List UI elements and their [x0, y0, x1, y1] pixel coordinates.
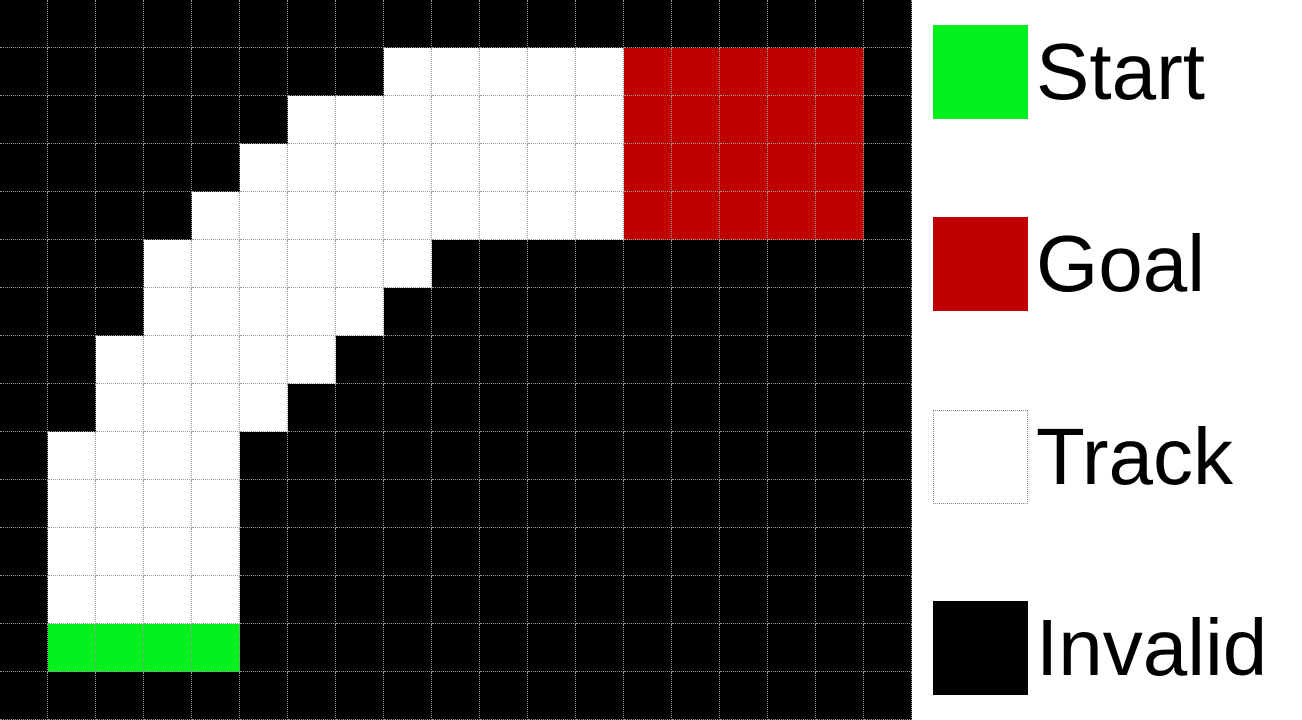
grid-cell: [336, 672, 384, 720]
legend-swatch-start: [933, 25, 1028, 119]
legend-item-invalid: Invalid: [933, 601, 1267, 695]
grid-cell: [864, 144, 912, 192]
grid-cell: [480, 0, 528, 48]
grid-cell: [624, 336, 672, 384]
grid-cell: [528, 384, 576, 432]
grid-cell: [432, 288, 480, 336]
grid-cell: [864, 336, 912, 384]
grid-cell: [816, 336, 864, 384]
grid-cell: [432, 240, 480, 288]
grid-cell: [624, 624, 672, 672]
grid-cell: [720, 192, 768, 240]
grid-cell: [192, 48, 240, 96]
grid-cell: [528, 576, 576, 624]
grid-cell: [864, 384, 912, 432]
grid-cell: [0, 528, 48, 576]
grid-cell: [816, 384, 864, 432]
grid-cell: [720, 576, 768, 624]
grid-cell: [432, 192, 480, 240]
grid-cell: [768, 480, 816, 528]
grid-cell: [432, 48, 480, 96]
grid-cell: [144, 672, 192, 720]
grid-cell: [336, 288, 384, 336]
legend-swatch-track: [933, 410, 1028, 504]
grid-cell: [288, 192, 336, 240]
grid-cell: [144, 48, 192, 96]
grid-cell: [720, 240, 768, 288]
grid-cell: [96, 384, 144, 432]
grid-cell: [0, 432, 48, 480]
grid-cell: [528, 288, 576, 336]
grid-cell: [816, 192, 864, 240]
grid-cell: [288, 48, 336, 96]
legend-label-track: Track: [1036, 410, 1233, 504]
grid-cell: [240, 480, 288, 528]
grid-cell: [240, 288, 288, 336]
grid-cell: [624, 432, 672, 480]
grid-cell: [624, 96, 672, 144]
grid-cell: [576, 624, 624, 672]
grid-cell: [768, 336, 816, 384]
grid-cell: [480, 528, 528, 576]
grid-cell: [0, 336, 48, 384]
grid-cell: [192, 384, 240, 432]
grid-cell: [672, 384, 720, 432]
grid-cell: [0, 624, 48, 672]
grid-cell: [864, 480, 912, 528]
grid-cell: [624, 144, 672, 192]
grid-cell: [432, 528, 480, 576]
grid-cell: [288, 480, 336, 528]
grid-cell: [192, 144, 240, 192]
grid-cell: [240, 48, 288, 96]
grid-cell: [720, 528, 768, 576]
legend-swatch-invalid: [933, 601, 1028, 695]
grid-cell: [672, 288, 720, 336]
grid-cell: [624, 480, 672, 528]
grid-cell: [816, 288, 864, 336]
grid-cell: [288, 288, 336, 336]
legend-label-invalid: Invalid: [1036, 601, 1267, 695]
grid-cell: [384, 144, 432, 192]
grid-cell: [48, 672, 96, 720]
grid-cell: [288, 336, 336, 384]
grid-cell: [576, 672, 624, 720]
grid-cell: [384, 624, 432, 672]
grid-cell: [192, 480, 240, 528]
grid-cell: [864, 192, 912, 240]
grid-cell: [720, 384, 768, 432]
grid-cell: [432, 96, 480, 144]
grid-cell: [480, 624, 528, 672]
grid-cell: [528, 480, 576, 528]
grid-cell: [48, 0, 96, 48]
grid-cell: [96, 144, 144, 192]
grid-cell: [0, 672, 48, 720]
legend-label-start: Start: [1036, 25, 1205, 119]
grid-cell: [480, 336, 528, 384]
grid-cell: [192, 192, 240, 240]
grid-cell: [192, 432, 240, 480]
grid-cell: [576, 336, 624, 384]
grid-cell: [48, 624, 96, 672]
grid-cell: [576, 384, 624, 432]
grid-cell: [480, 240, 528, 288]
grid-cell: [672, 96, 720, 144]
grid-cell: [336, 336, 384, 384]
grid-cell: [576, 480, 624, 528]
grid-cell: [576, 144, 624, 192]
grid-cell: [720, 288, 768, 336]
grid-cell: [240, 672, 288, 720]
grid-cell: [720, 144, 768, 192]
grid-cell: [864, 288, 912, 336]
grid-cell: [672, 336, 720, 384]
grid-cell: [96, 576, 144, 624]
grid-cell: [96, 672, 144, 720]
grid-cell: [48, 96, 96, 144]
grid-cell: [240, 384, 288, 432]
grid-cell: [336, 528, 384, 576]
grid-cell: [768, 96, 816, 144]
grid-cell: [576, 48, 624, 96]
grid-cell: [864, 0, 912, 48]
grid-cell: [240, 0, 288, 48]
grid-cell: [240, 336, 288, 384]
grid-cell: [384, 192, 432, 240]
grid-cell: [816, 0, 864, 48]
grid-cell: [864, 96, 912, 144]
grid-cell: [768, 48, 816, 96]
grid-cell: [48, 192, 96, 240]
grid-cell: [144, 384, 192, 432]
grid-cell: [96, 432, 144, 480]
grid-cell: [96, 624, 144, 672]
grid-cell: [240, 432, 288, 480]
grid-cell: [336, 576, 384, 624]
grid-cell: [720, 48, 768, 96]
grid-cell: [192, 672, 240, 720]
grid-cell: [336, 192, 384, 240]
grid-cell: [144, 288, 192, 336]
legend-item-goal: Goal: [933, 217, 1205, 311]
grid-cell: [672, 480, 720, 528]
grid-cell: [384, 576, 432, 624]
grid-cell: [0, 144, 48, 192]
grid-cell: [528, 240, 576, 288]
grid-cell: [576, 0, 624, 48]
grid-cell: [96, 48, 144, 96]
grid-cell: [672, 528, 720, 576]
grid-cell: [288, 672, 336, 720]
grid-cell: [528, 96, 576, 144]
grid-cell: [768, 288, 816, 336]
grid-cell: [672, 240, 720, 288]
grid-cell: [384, 672, 432, 720]
grid-cell: [0, 96, 48, 144]
grid-cell: [624, 384, 672, 432]
legend-item-start: Start: [933, 25, 1205, 119]
grid-cell: [384, 0, 432, 48]
grid-cell: [192, 576, 240, 624]
grid-cell: [336, 240, 384, 288]
grid-cell: [384, 48, 432, 96]
grid-cell: [480, 144, 528, 192]
grid-cell: [624, 528, 672, 576]
grid-cell: [768, 144, 816, 192]
grid-cell: [864, 240, 912, 288]
grid-cell: [336, 144, 384, 192]
grid-cell: [768, 192, 816, 240]
grid-cell: [96, 528, 144, 576]
grid-cell: [864, 576, 912, 624]
grid-cell: [384, 432, 432, 480]
grid-cell: [768, 240, 816, 288]
grid-cell: [144, 96, 192, 144]
grid-cell: [624, 240, 672, 288]
grid-cell: [528, 624, 576, 672]
grid-cell: [288, 384, 336, 432]
grid-cell: [384, 96, 432, 144]
grid-cell: [576, 528, 624, 576]
grid-cell: [672, 0, 720, 48]
grid-cell: [0, 240, 48, 288]
grid-cell: [528, 336, 576, 384]
grid-cell: [432, 624, 480, 672]
grid-cell: [432, 0, 480, 48]
grid-cell: [288, 144, 336, 192]
grid-cell: [816, 576, 864, 624]
grid-cell: [96, 0, 144, 48]
grid-cell: [48, 384, 96, 432]
grid-cell: [96, 96, 144, 144]
grid-cell: [288, 96, 336, 144]
grid-cell: [720, 480, 768, 528]
grid-cell: [480, 96, 528, 144]
grid-cell: [0, 0, 48, 48]
grid-cell: [0, 576, 48, 624]
grid-cell: [48, 432, 96, 480]
grid-cell: [480, 192, 528, 240]
grid-cell: [768, 432, 816, 480]
grid-cell: [816, 144, 864, 192]
grid-cell: [624, 48, 672, 96]
grid-cell: [720, 624, 768, 672]
grid-cell: [48, 336, 96, 384]
legend-swatch-goal: [933, 217, 1028, 311]
grid-cell: [576, 96, 624, 144]
grid-cell: [0, 384, 48, 432]
grid-cell: [288, 240, 336, 288]
grid-cell: [144, 336, 192, 384]
grid-cell: [384, 240, 432, 288]
grid-cell: [48, 288, 96, 336]
grid-cell: [432, 432, 480, 480]
grid-cell: [768, 528, 816, 576]
grid-cell: [720, 432, 768, 480]
grid-cell: [240, 576, 288, 624]
grid-cell: [96, 288, 144, 336]
grid-cell: [240, 528, 288, 576]
grid-cell: [480, 576, 528, 624]
grid-cell: [624, 576, 672, 624]
grid-cell: [96, 480, 144, 528]
grid-cell: [720, 336, 768, 384]
grid-cell: [144, 432, 192, 480]
grid-cell: [624, 192, 672, 240]
grid-cell: [192, 240, 240, 288]
grid-cell: [624, 0, 672, 48]
grid-cell: [432, 480, 480, 528]
grid-cell: [576, 432, 624, 480]
grid-cell: [816, 432, 864, 480]
grid-cell: [480, 48, 528, 96]
grid-cell: [192, 336, 240, 384]
grid-cell: [336, 384, 384, 432]
grid-cell: [144, 624, 192, 672]
grid-cell: [816, 528, 864, 576]
grid-cell: [528, 528, 576, 576]
grid-cell: [240, 240, 288, 288]
grid-cell: [432, 144, 480, 192]
grid-cell: [192, 624, 240, 672]
grid-cell: [144, 144, 192, 192]
grid-cell: [96, 192, 144, 240]
grid-cell: [240, 192, 288, 240]
grid-cell: [720, 0, 768, 48]
grid-cell: [240, 96, 288, 144]
grid-cell: [144, 480, 192, 528]
grid-cell: [336, 432, 384, 480]
grid-cell: [144, 576, 192, 624]
grid-cell: [816, 624, 864, 672]
grid-cell: [480, 432, 528, 480]
grid-cell: [432, 672, 480, 720]
grid-cell: [768, 672, 816, 720]
grid-cell: [672, 432, 720, 480]
grid-cell: [624, 288, 672, 336]
grid-cell: [0, 480, 48, 528]
grid-cell: [0, 288, 48, 336]
grid-cell: [480, 288, 528, 336]
grid-cell: [624, 672, 672, 720]
grid-cell: [48, 144, 96, 192]
grid-cell: [48, 48, 96, 96]
grid-cell: [768, 0, 816, 48]
grid-cell: [864, 672, 912, 720]
grid-cell: [192, 0, 240, 48]
grid-cell: [384, 384, 432, 432]
grid-cell: [480, 384, 528, 432]
grid-cell: [672, 576, 720, 624]
grid-cell: [768, 384, 816, 432]
grid-cell: [864, 624, 912, 672]
grid-cell: [528, 432, 576, 480]
grid-cell: [288, 432, 336, 480]
grid-cell: [384, 528, 432, 576]
grid-cell: [816, 672, 864, 720]
grid-cell: [144, 240, 192, 288]
racetrack-grid: [0, 0, 912, 720]
grid-cell: [144, 0, 192, 48]
grid-cell: [336, 624, 384, 672]
grid-cell: [336, 0, 384, 48]
grid-cell: [96, 240, 144, 288]
grid-cell: [816, 240, 864, 288]
grid-cell: [528, 144, 576, 192]
grid-cell: [768, 576, 816, 624]
grid-cell: [576, 192, 624, 240]
grid-cell: [288, 576, 336, 624]
racetrack-figure: Start Goal Track Invalid: [0, 0, 1302, 720]
grid-cell: [48, 480, 96, 528]
grid-cell: [0, 48, 48, 96]
grid-cell: [768, 624, 816, 672]
grid-cell: [816, 48, 864, 96]
grid-cell: [432, 384, 480, 432]
grid-cell: [528, 192, 576, 240]
grid-cell: [528, 672, 576, 720]
grid-cell: [672, 192, 720, 240]
grid-cell: [864, 432, 912, 480]
grid-cell: [144, 528, 192, 576]
grid-cell: [672, 144, 720, 192]
grid-cell: [384, 480, 432, 528]
grid-cell: [336, 96, 384, 144]
grid-cell: [720, 96, 768, 144]
grid-cell: [336, 480, 384, 528]
grid-cell: [864, 528, 912, 576]
grid-cell: [48, 240, 96, 288]
grid-cell: [576, 576, 624, 624]
grid-cell: [816, 96, 864, 144]
grid-cell: [480, 672, 528, 720]
grid-cell: [432, 576, 480, 624]
grid-cell: [0, 192, 48, 240]
grid-cell: [480, 480, 528, 528]
legend-label-goal: Goal: [1036, 217, 1205, 311]
grid-cell: [192, 528, 240, 576]
grid-cell: [240, 624, 288, 672]
grid-cell: [288, 528, 336, 576]
grid-cell: [192, 288, 240, 336]
grid-cell: [336, 48, 384, 96]
grid-cell: [96, 336, 144, 384]
grid-cell: [384, 288, 432, 336]
grid-cell: [720, 672, 768, 720]
grid-cell: [240, 144, 288, 192]
legend-item-track: Track: [933, 410, 1233, 504]
grid-cell: [528, 0, 576, 48]
grid-cell: [672, 624, 720, 672]
grid-cell: [816, 480, 864, 528]
grid-cell: [528, 48, 576, 96]
grid-cell: [384, 336, 432, 384]
grid-cell: [672, 672, 720, 720]
grid-cell: [48, 576, 96, 624]
grid-cell: [432, 336, 480, 384]
grid-cell: [192, 96, 240, 144]
legend: Start Goal Track Invalid: [912, 0, 1302, 720]
grid-cell: [288, 0, 336, 48]
grid-cell: [864, 48, 912, 96]
grid-cell: [576, 240, 624, 288]
grid-cell: [576, 288, 624, 336]
grid-cell: [288, 624, 336, 672]
grid-cell: [48, 528, 96, 576]
grid-cell: [672, 48, 720, 96]
grid-cell: [144, 192, 192, 240]
